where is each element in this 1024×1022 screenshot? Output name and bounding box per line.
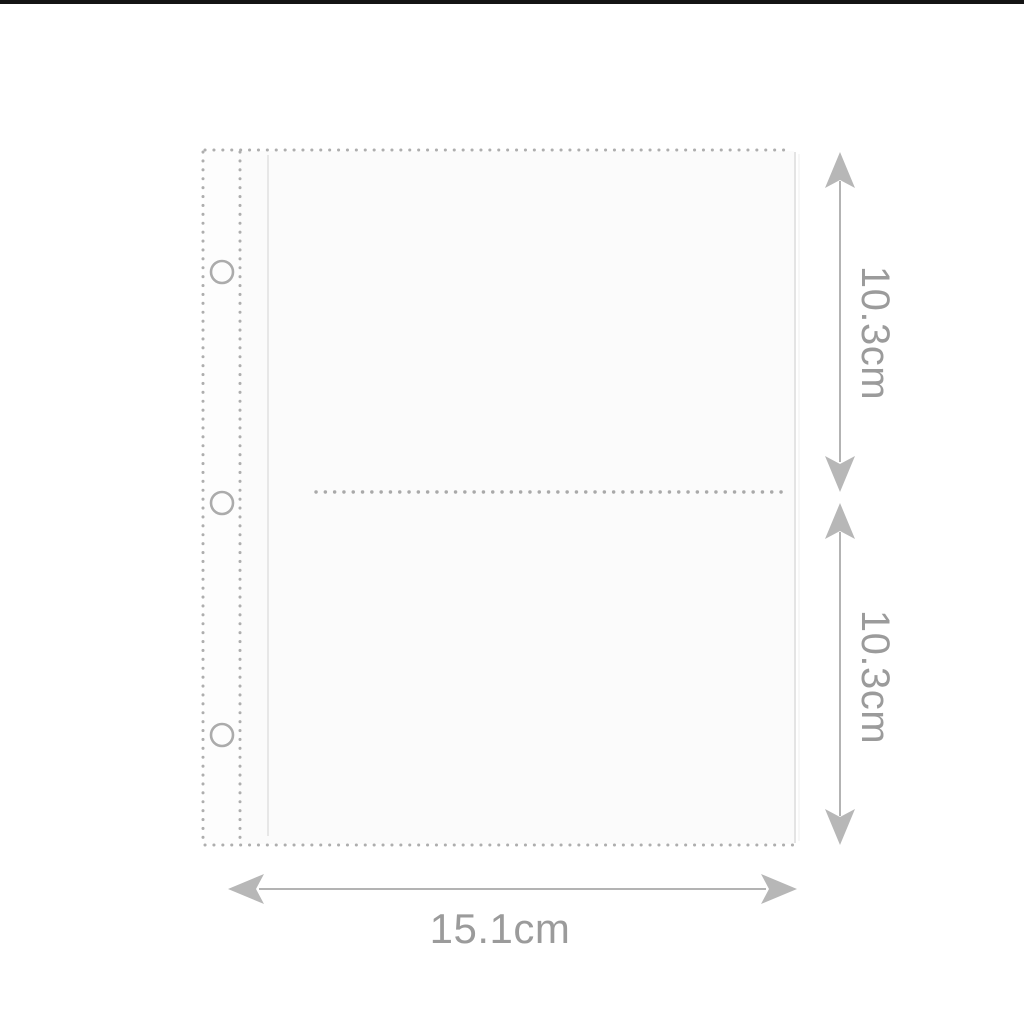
dimension-height-top: 10.3cm [825,152,897,492]
arrow-right-icon [761,874,797,904]
height-bottom-label: 10.3cm [853,610,897,744]
dimension-width: 15.1cm [228,874,797,952]
binder-hole-top [211,261,233,283]
sleeve-body [204,151,794,844]
binder-hole-bottom [211,724,233,746]
arrow-left-icon [228,874,264,904]
height-top-label: 10.3cm [853,266,897,400]
sleeve-dimension-diagram: 10.3cm 10.3cm 15.1cm [0,0,1024,1022]
dimension-height-bottom: 10.3cm [825,503,897,845]
sleeve-pocket-area [204,151,794,844]
binder-hole-middle [211,492,233,514]
product-diagram-canvas: 10.3cm 10.3cm 15.1cm [0,0,1024,1022]
width-label: 15.1cm [430,905,571,952]
